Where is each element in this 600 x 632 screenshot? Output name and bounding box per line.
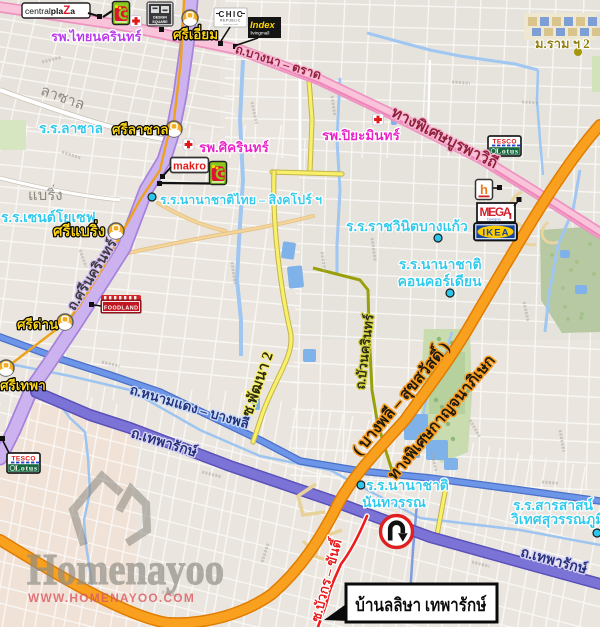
svg-text:makro: makro (173, 161, 206, 173)
svg-text:DESIGN: DESIGN (153, 16, 167, 20)
svg-text:livingmall: livingmall (251, 31, 270, 36)
svg-text:centralplaZa: centralplaZa (25, 5, 75, 17)
svg-text:home living trends: home living trends (223, 23, 238, 26)
svg-text:IKEA: IKEA (483, 227, 509, 238)
svg-text:bangna: bangna (487, 217, 501, 222)
svg-text:REPUBLIC: REPUBLIC (220, 19, 241, 23)
svg-text:FOODLAND: FOODLAND (104, 306, 138, 312)
svg-text:h: h (480, 182, 488, 197)
svg-text:Homenayoo: Homenayoo (27, 545, 224, 594)
svg-text:WWW.HOMENAYOO.COM: WWW.HOMENAYOO.COM (28, 593, 195, 605)
svg-text:Index: Index (250, 20, 276, 31)
svg-text:SQUARE: SQUARE (152, 20, 168, 24)
